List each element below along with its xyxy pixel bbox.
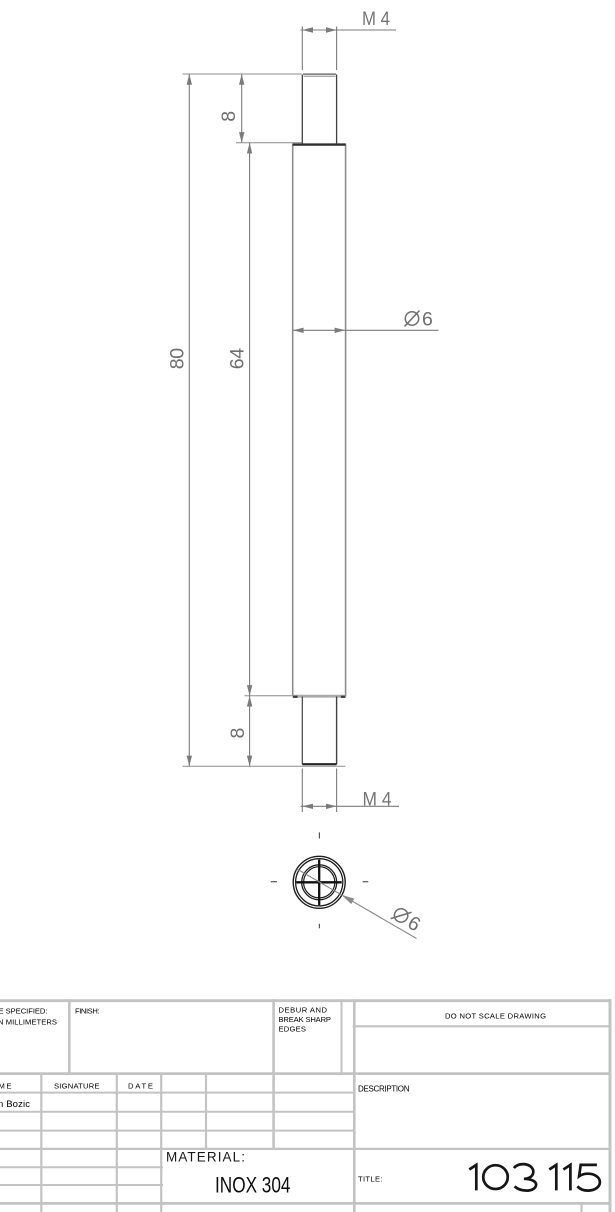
svg-text:8: 8 [218, 111, 240, 122]
svg-text:M 4: M 4 [362, 8, 390, 30]
svg-text:80: 80 [166, 348, 188, 370]
svg-text:EDGES: EDGES [279, 1024, 307, 1033]
svg-text:N MILLIMETERS: N MILLIMETERS [0, 1018, 57, 1027]
svg-text:E SPECIFIED:: E SPECIFIED: [0, 1007, 48, 1016]
svg-text:TITLE:: TITLE: [358, 1174, 383, 1183]
svg-text:6: 6 [422, 309, 433, 331]
svg-text:BREAK SHARP: BREAK SHARP [279, 1015, 332, 1024]
svg-text:ME: ME [0, 1081, 12, 1090]
svg-text:n Bozic: n Bozic [0, 1099, 30, 1110]
svg-text:M 4: M 4 [363, 788, 392, 810]
svg-text:DESCRIPTION: DESCRIPTION [358, 1084, 410, 1093]
svg-text:INOX 304: INOX 304 [215, 1173, 291, 1198]
svg-text:MATERIAL:: MATERIAL: [166, 1149, 245, 1164]
svg-text:FINISH:: FINISH: [75, 1007, 100, 1016]
svg-text:8: 8 [227, 728, 249, 739]
svg-text:DEBUR AND: DEBUR AND [279, 1006, 328, 1015]
svg-text:DO NOT SCALE DRAWING: DO NOT SCALE DRAWING [445, 1011, 546, 1020]
svg-text:SIGNATURE: SIGNATURE [54, 1081, 100, 1090]
svg-text:64: 64 [227, 348, 249, 370]
